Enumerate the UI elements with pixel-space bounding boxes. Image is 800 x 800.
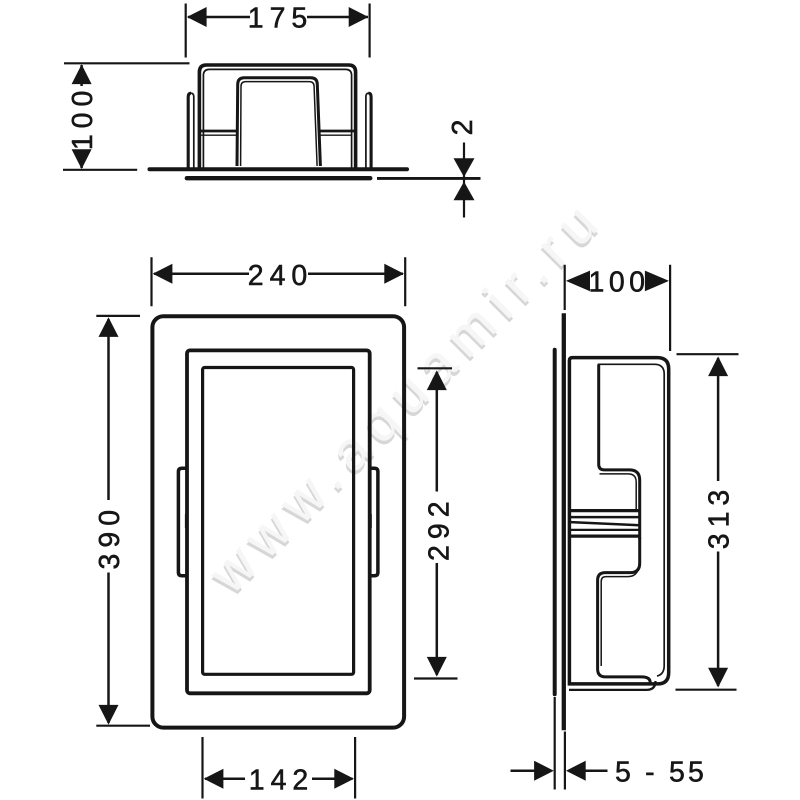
svg-text:292: 292 bbox=[423, 495, 455, 561]
svg-text:313: 313 bbox=[703, 484, 735, 550]
svg-text:142: 142 bbox=[249, 765, 315, 797]
svg-text:100: 100 bbox=[588, 266, 649, 298]
svg-text:5 - 55: 5 - 55 bbox=[615, 757, 707, 789]
svg-text:100: 100 bbox=[67, 85, 99, 151]
svg-text:240: 240 bbox=[248, 260, 314, 292]
svg-text:175: 175 bbox=[248, 3, 314, 35]
svg-text:390: 390 bbox=[94, 504, 126, 570]
svg-text:2: 2 bbox=[447, 120, 479, 136]
